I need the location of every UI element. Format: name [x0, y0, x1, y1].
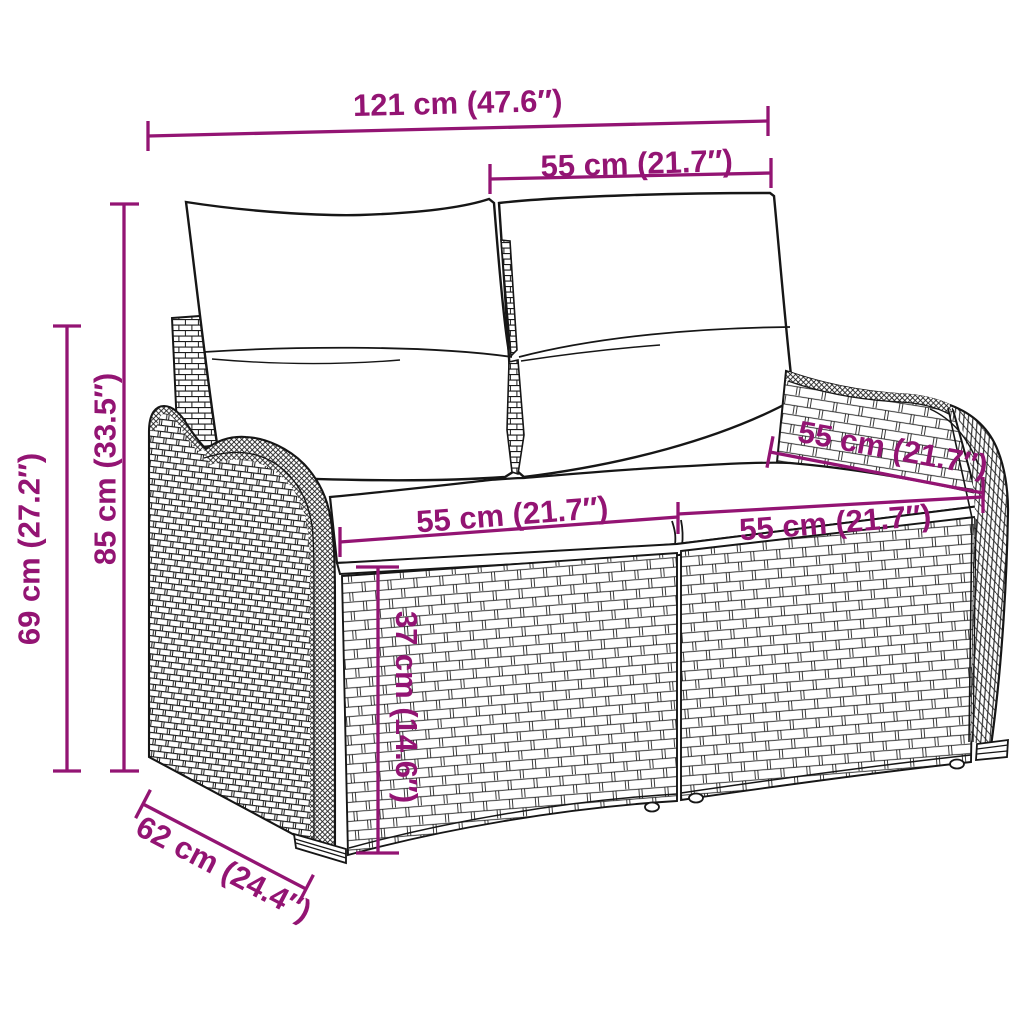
svg-text:85 cm (33.5″): 85 cm (33.5″)	[88, 373, 123, 565]
svg-text:69 cm (27.2″): 69 cm (27.2″)	[12, 453, 47, 645]
svg-text:121 cm (47.6″): 121 cm (47.6″)	[353, 83, 563, 123]
svg-text:37 cm (14.6″): 37 cm (14.6″)	[389, 611, 424, 803]
svg-text:55 cm (21.7″): 55 cm (21.7″)	[540, 143, 733, 184]
